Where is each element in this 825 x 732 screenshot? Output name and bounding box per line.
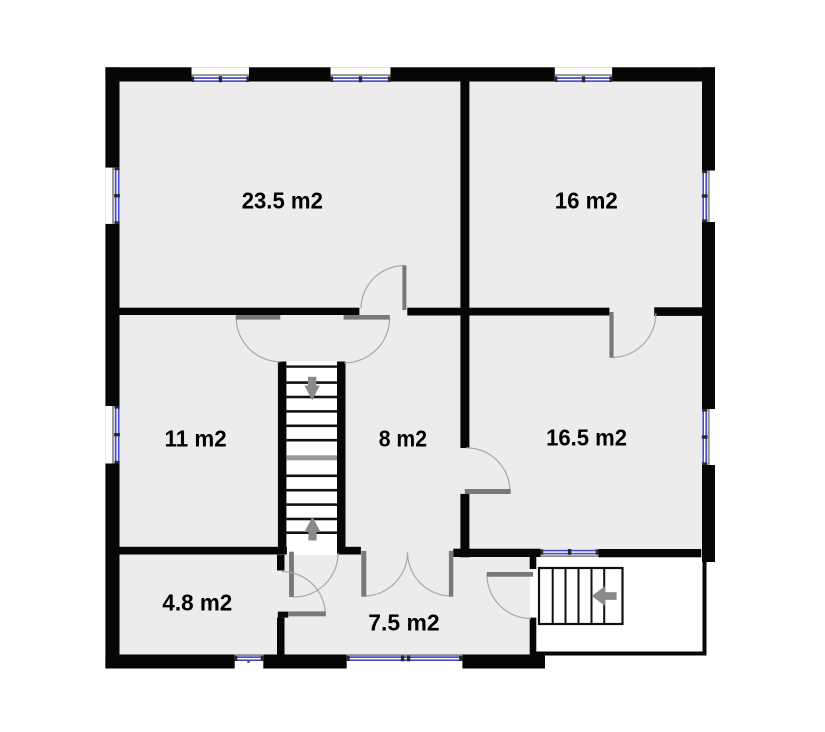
svg-text:23.5 m2: 23.5 m2 <box>242 188 323 214</box>
svg-text:11 m2: 11 m2 <box>165 426 227 452</box>
svg-text:8 m2: 8 m2 <box>379 426 427 452</box>
svg-text:7.5 m2: 7.5 m2 <box>368 610 440 636</box>
svg-text:16.5 m2: 16.5 m2 <box>546 425 627 451</box>
svg-text:4.8 m2: 4.8 m2 <box>162 590 232 616</box>
svg-text:16 m2: 16 m2 <box>555 188 618 214</box>
